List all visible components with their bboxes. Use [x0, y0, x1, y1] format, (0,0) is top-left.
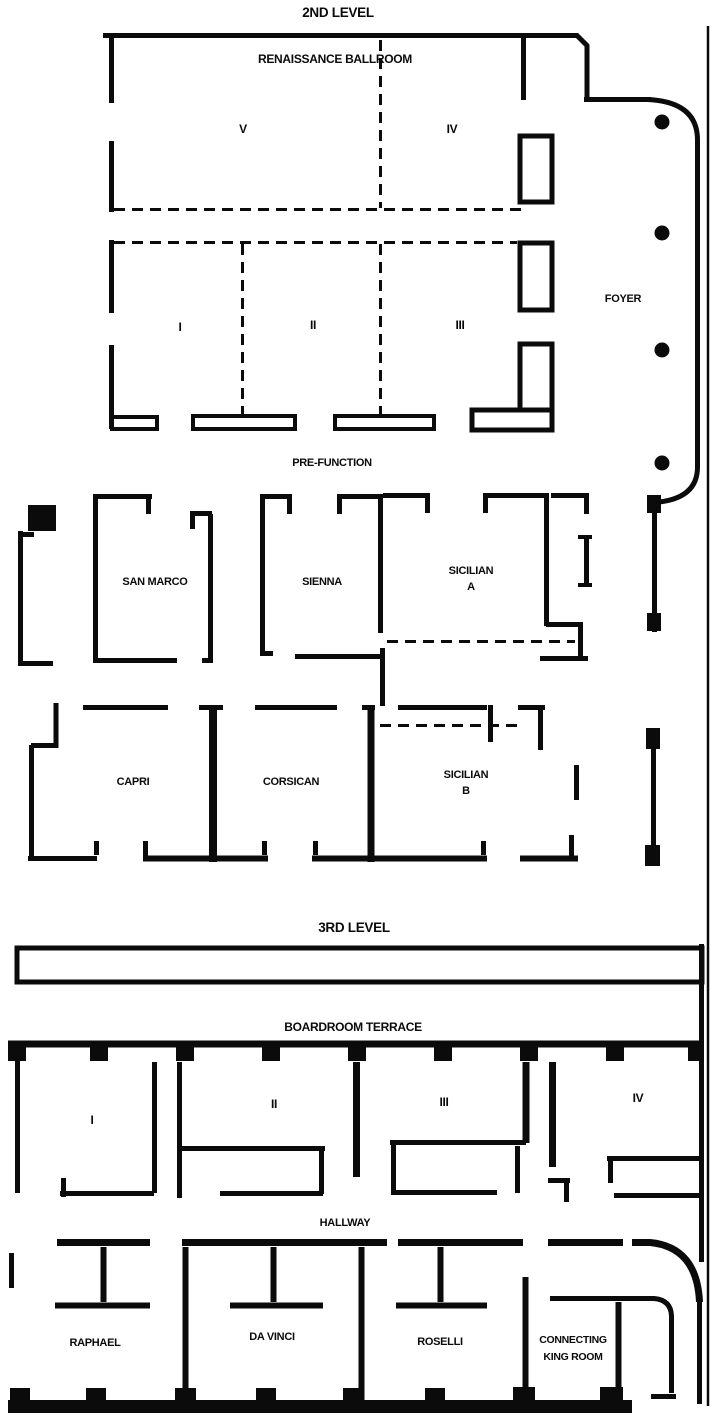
- guest-room-dividers: [186, 1247, 619, 1400]
- column-marker: [90, 1046, 108, 1061]
- label-level3-iv: IV: [633, 1091, 644, 1105]
- label-capri: CAPRI: [117, 776, 150, 788]
- wall-end-cap: [647, 495, 661, 513]
- column-marker: [343, 1388, 363, 1402]
- label-hallway: HALLWAY: [320, 1217, 372, 1229]
- room-i-walls: [60, 1062, 180, 1198]
- label-corsican: CORSICAN: [263, 776, 320, 788]
- column-marker: [10, 1388, 30, 1402]
- row2-door-jambs: [97, 765, 577, 861]
- ballroom-top-wall: [103, 36, 651, 100]
- label-raphael: RAPHAEL: [69, 1337, 121, 1349]
- sienna-walls: [260, 494, 383, 706]
- label-ballroom-ii: II: [310, 318, 316, 332]
- column-marker: [262, 1046, 280, 1061]
- level3-plan: 3RD LEVEL BOARDROOM TERRACE I II III IV …: [8, 920, 704, 1413]
- label-level3-ii: II: [271, 1097, 277, 1111]
- level3-title: 3RD LEVEL: [318, 920, 390, 935]
- entry-vestibule-walls: [55, 1247, 487, 1306]
- label-king-room-1: CONNECTING: [539, 1334, 607, 1346]
- label-sicilian-a-2: A: [467, 581, 475, 593]
- column-marker: [256, 1388, 276, 1402]
- label-level3-iii: III: [439, 1095, 448, 1109]
- column-marker: [348, 1046, 366, 1061]
- level3-top-columns: [8, 1046, 704, 1061]
- label-roselli: ROSELLI: [417, 1336, 463, 1348]
- label-prefunction: PRE-FUNCTION: [292, 457, 372, 469]
- service-column-block: [28, 505, 56, 531]
- label-level3-i: I: [90, 1113, 93, 1127]
- label-sicilian-b-2: B: [462, 785, 470, 797]
- foyer-column-dot: [655, 456, 670, 471]
- foyer-column-dot: [655, 343, 670, 358]
- ballroom-wall-pocket-l-foot: [472, 410, 552, 430]
- foyer-outer-wall: [648, 100, 698, 503]
- column-marker: [175, 1388, 196, 1402]
- foyer-column-dot: [655, 226, 670, 241]
- room-iv-walls: [607, 1158, 700, 1196]
- foyer-column-dot: [655, 115, 670, 130]
- floor-plan: 2ND LEVEL V IV I II III RENAISSANCE BALL…: [0, 0, 711, 1416]
- wall-end-cap: [646, 728, 660, 749]
- room-ii-walls: [182, 1149, 325, 1195]
- column-marker: [86, 1388, 106, 1402]
- door-sill: [193, 416, 295, 429]
- label-ballroom-v: V: [239, 122, 247, 136]
- king-room-walls: [550, 1299, 676, 1397]
- sicilian-a-walls: [383, 496, 589, 660]
- ballroom-wall-pocket-lower: [520, 243, 552, 310]
- room-iii-iv-divider: [526, 1062, 553, 1167]
- left-service-wall: [18, 531, 53, 666]
- column-marker: [8, 1046, 26, 1061]
- column-marker: [520, 1046, 538, 1061]
- label-san-marco: SAN MARCO: [122, 576, 188, 588]
- label-sicilian-b-1: SICILIAN: [444, 769, 489, 781]
- label-ballroom-iii: III: [455, 318, 464, 332]
- door-sill: [335, 416, 434, 429]
- label-ballroom-iv: IV: [447, 122, 458, 136]
- label-king-room-2: KING ROOM: [543, 1351, 603, 1363]
- door-sill: [112, 417, 157, 429]
- label-sienna: SIENNA: [302, 576, 342, 588]
- label-ballroom-i: I: [178, 320, 181, 334]
- label-da-vinci: DA VINCI: [249, 1331, 295, 1343]
- column-marker: [600, 1387, 623, 1403]
- column-marker: [176, 1046, 194, 1061]
- hallway-corner-arc: [632, 1243, 700, 1303]
- label-foyer: FOYER: [605, 293, 642, 305]
- ballroom-wall-pocket-l-vertical: [520, 344, 552, 412]
- column-marker: [425, 1388, 445, 1402]
- level2-title: 2ND LEVEL: [302, 5, 374, 20]
- ballroom-wall-pocket-upper: [520, 136, 552, 202]
- wall-end-cap: [645, 845, 660, 866]
- column-marker: [606, 1046, 624, 1061]
- column-marker: [434, 1046, 452, 1061]
- column-marker: [513, 1387, 535, 1403]
- label-sicilian-a-1: SICILIAN: [449, 565, 494, 577]
- label-boardroom-terrace: BOARDROOM TERRACE: [284, 1020, 422, 1034]
- room-iii-walls: [390, 1143, 570, 1203]
- boardroom-terrace-strip: [17, 948, 702, 982]
- capri-left-wall: [28, 745, 97, 861]
- label-ballroom-name: RENAISSANCE BALLROOM: [258, 52, 412, 66]
- wall-end-cap: [647, 613, 661, 631]
